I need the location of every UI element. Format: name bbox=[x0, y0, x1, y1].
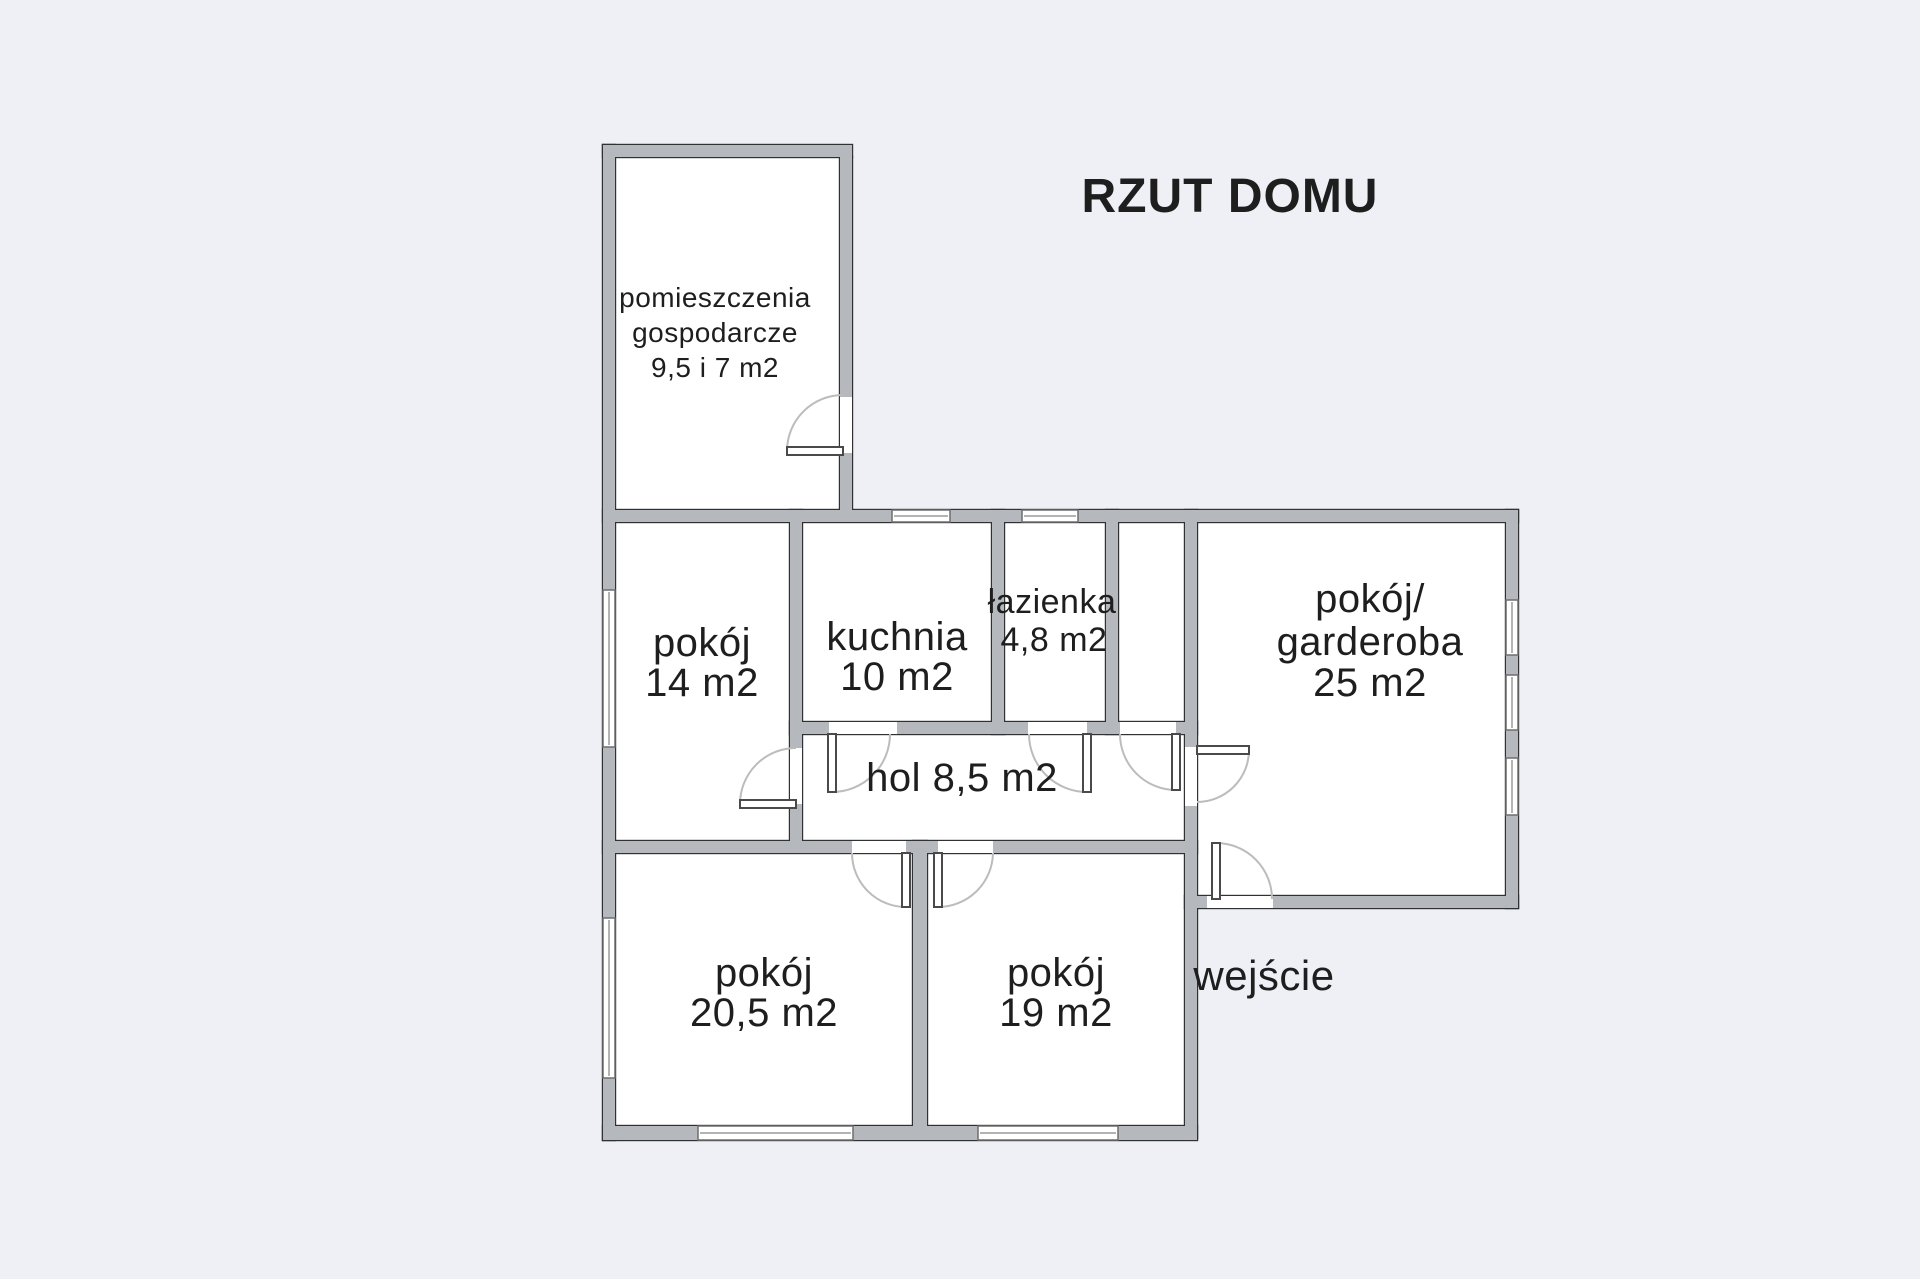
door-leaf-pokoj205 bbox=[902, 853, 910, 907]
door-leaf-pokoj19 bbox=[934, 853, 942, 907]
room-label-pokoj205-area: 20,5 m2 bbox=[690, 991, 838, 1035]
opening-pokoj19-door bbox=[938, 841, 993, 853]
room-label-pokoj19-name: pokój bbox=[1007, 951, 1105, 995]
opening-pokoj205-door bbox=[852, 841, 906, 853]
room-label-kuchnia-area: 10 m2 bbox=[840, 655, 954, 699]
door-leaf-entrance bbox=[1212, 843, 1220, 899]
room-label-pokoj14-name: pokój bbox=[653, 621, 751, 665]
opening-pokoj14-door bbox=[790, 748, 802, 804]
room-label-pokoj14-area: 14 m2 bbox=[645, 661, 759, 705]
door-leaf-kuchnia bbox=[828, 734, 836, 792]
room-label-gospodarcze-area: 9,5 i 7 m2 bbox=[651, 352, 779, 383]
room-label-pokoj19-area: 19 m2 bbox=[999, 991, 1113, 1035]
entrance-label: wejście bbox=[1192, 952, 1334, 999]
opening-utility-door bbox=[840, 397, 852, 453]
room-label-hol: hol 8,5 m2 bbox=[866, 756, 1058, 800]
room-label-kuchnia-name: kuchnia bbox=[826, 615, 968, 659]
door-leaf-garderoba bbox=[1197, 746, 1249, 754]
room-label-gospodarcze-line2: gospodarcze bbox=[632, 317, 798, 348]
door-leaf-utility bbox=[787, 447, 843, 455]
room-label-pokoj205-name: pokój bbox=[715, 951, 813, 995]
room-label-garderoba-line1: pokój/ bbox=[1315, 577, 1425, 621]
room-label-lazienka-name: łazienka bbox=[988, 583, 1117, 621]
door-leaf-pokoj14 bbox=[740, 800, 796, 808]
room-label-garderoba-line2: garderoba bbox=[1277, 620, 1464, 664]
floor-plan: RZUT DOMU pomieszczenia gospodarcze 9,5 … bbox=[0, 0, 1920, 1279]
opening-kuchnia-door bbox=[829, 722, 897, 734]
door-leaf-small-room bbox=[1172, 734, 1180, 790]
floor-plan-page: RZUT DOMU pomieszczenia gospodarcze 9,5 … bbox=[0, 0, 1920, 1279]
opening-small-room-door bbox=[1120, 722, 1176, 734]
room-label-lazienka-area: 4,8 m2 bbox=[1001, 621, 1108, 659]
opening-garderoba-door bbox=[1185, 747, 1197, 806]
room-label-gospodarcze-line1: pomieszczenia bbox=[619, 282, 811, 313]
room-label-garderoba-area: 25 m2 bbox=[1313, 661, 1427, 705]
opening-lazienka-door bbox=[1028, 722, 1087, 734]
door-leaf-lazienka bbox=[1083, 734, 1091, 792]
page-title: RZUT DOMU bbox=[1082, 170, 1379, 223]
